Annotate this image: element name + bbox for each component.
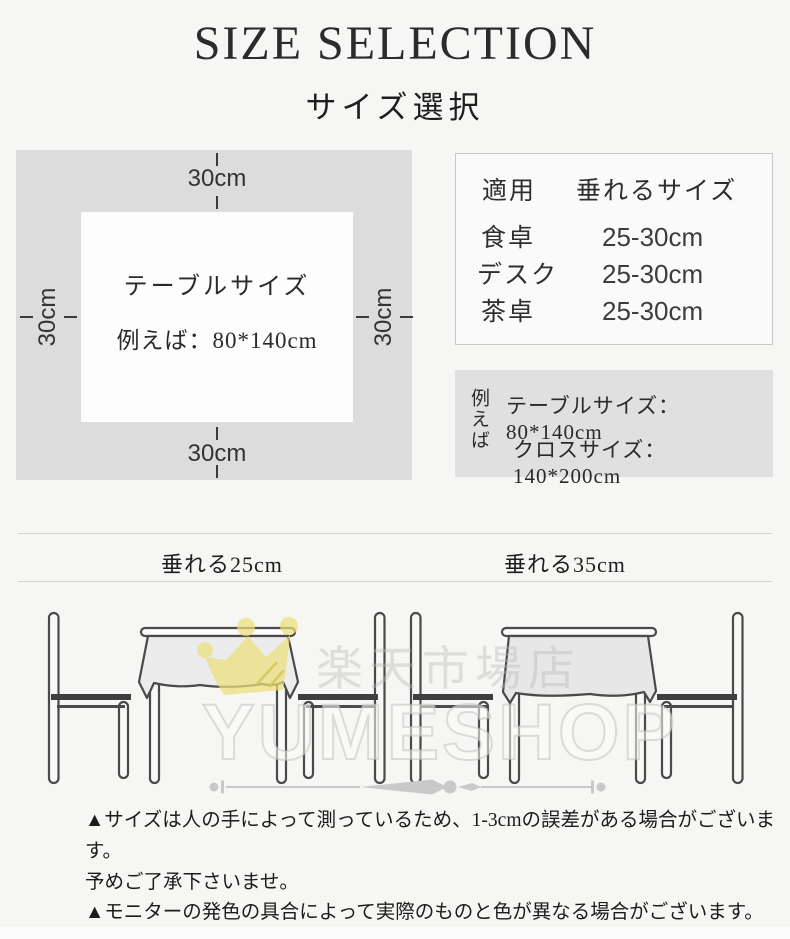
note-line: ▲サイズは人の手によって測っているため、1-3cmの誤差がある場合がございます。 <box>85 806 775 868</box>
divider-top <box>18 533 772 534</box>
tick-right-inner <box>356 316 369 318</box>
tick-left-inner <box>64 316 77 318</box>
row-drop-tea: 25-30cm <box>602 296 703 327</box>
chair-rail-icon <box>57 705 125 708</box>
chair-leg-icon <box>119 702 128 778</box>
divider-bottom <box>18 581 772 582</box>
page-subtitle: サイズ選択 <box>0 82 790 127</box>
row-use-desk: デスク <box>477 255 558 291</box>
margin-label-right: 30cm <box>370 282 398 352</box>
tablecloth-measure-diagram: テーブルサイズ 例えば：80*140cm 30cm 30cm 30cm 30cm <box>16 150 412 480</box>
size-example-box: 例えば テーブルサイズ：80*140cm クロスサイズ：140*200cm <box>455 370 773 477</box>
watermark-shop-en: YUMESHOP <box>202 686 678 778</box>
drop-size-table: 適用 垂れるサイズ 食卓 25-30cm デスク 25-30cm 茶卓 25-3… <box>455 153 773 345</box>
ruler-watermark-icon <box>210 780 606 795</box>
note-line: 予めご了承下さいませ。 <box>85 868 775 899</box>
row-drop-desk: 25-30cm <box>602 259 703 290</box>
row-drop-dining: 25-30cm <box>602 222 703 253</box>
row-use-tea: 茶卓 <box>481 292 535 328</box>
col-header-use: 適用 <box>482 171 536 207</box>
margin-label-top: 30cm <box>167 165 267 193</box>
example-prefix: 例えば <box>468 388 489 451</box>
col-header-drop: 垂れるサイズ <box>576 171 737 207</box>
table-size-box: テーブルサイズ 例えば：80*140cm <box>81 212 353 422</box>
page-title: SIZE SELECTION <box>0 16 790 71</box>
tick-left-outer <box>20 316 33 318</box>
example-cloth-size: クロスサイズ：140*200cm <box>513 434 773 489</box>
note-line: ▲モニターの発色の具合によって実際のものと色が異なる場合がございます。 <box>85 898 775 929</box>
tabletop-icon <box>141 628 295 636</box>
footnotes: ▲サイズは人の手によって測っているため、1-3cmの誤差がある場合がございます。… <box>85 806 775 939</box>
chair-seat-icon <box>51 694 131 700</box>
size-selection-infographic: SIZE SELECTION サイズ選択 テーブルサイズ 例えば：80*140c… <box>0 0 790 939</box>
drape-label-35cm: 垂れる35cm <box>465 547 665 579</box>
tick-right-outer <box>400 316 413 318</box>
bottom-strip <box>0 927 790 939</box>
tick-bottom-inner <box>216 427 218 440</box>
drape-label-25cm: 垂れる25cm <box>122 547 322 579</box>
table-size-example: 例えば：80*140cm <box>116 321 317 355</box>
margin-label-left: 30cm <box>34 282 62 352</box>
tick-bottom-outer <box>216 465 218 478</box>
tick-top-inner <box>216 196 218 209</box>
margin-label-bottom: 30cm <box>167 440 267 468</box>
table-size-label: テーブルサイズ <box>124 266 311 301</box>
row-use-dining: 食卓 <box>481 218 535 254</box>
